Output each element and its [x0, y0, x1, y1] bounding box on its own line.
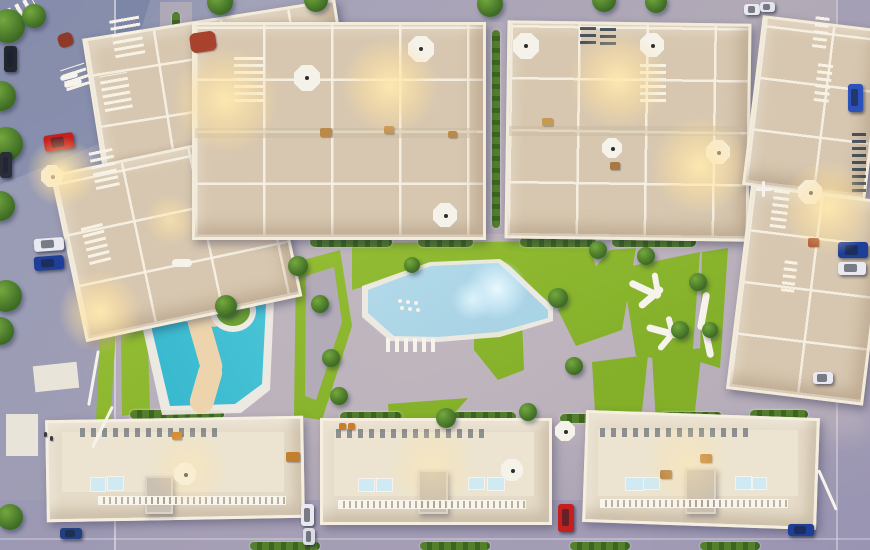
roof-glow-3 — [568, 30, 668, 130]
courtyard-glow-left — [148, 428, 228, 508]
courtyard-glow-right — [643, 419, 733, 509]
roof-glow-8 — [144, 194, 196, 246]
roof-glow-2 — [340, 36, 440, 136]
roof-glow-6 — [780, 160, 870, 256]
roof-glow-5 — [58, 270, 142, 354]
roof-glow-1 — [170, 45, 280, 155]
pool-spotlight-2 — [452, 280, 492, 320]
courtyard-glow-center — [387, 421, 477, 511]
roof-glow-7 — [26, 136, 98, 208]
roof-glow-4 — [650, 116, 750, 216]
stage — [0, 0, 870, 550]
glows — [0, 0, 870, 550]
